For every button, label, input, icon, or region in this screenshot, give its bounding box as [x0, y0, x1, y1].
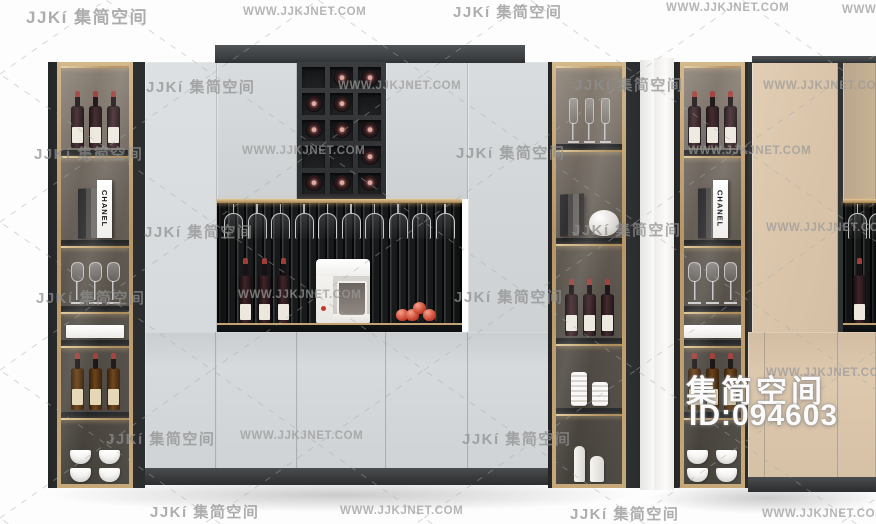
- wine-slot-filled: [358, 120, 381, 141]
- right-cabinet-side-panel: [654, 58, 674, 490]
- flute-item: [568, 98, 579, 142]
- hang-glass-item: [317, 204, 338, 240]
- wine-slot-filled: [358, 146, 381, 167]
- product-image: CHANEL: [0, 0, 876, 524]
- open-shelf: [217, 199, 462, 332]
- bottle-item: [565, 294, 578, 336]
- column-gold-frame: CHANEL: [57, 62, 133, 488]
- cylinder-item: [571, 372, 587, 406]
- bottle-item: [89, 106, 102, 148]
- tall-door-right: [468, 62, 550, 332]
- bottle-item: [724, 106, 737, 148]
- wine-slot-filled: [302, 93, 325, 114]
- bottle-item: [89, 368, 102, 410]
- wine-rack-grid: [297, 62, 386, 199]
- hang-glass-item: [435, 204, 456, 240]
- chanel-book: CHANEL: [97, 180, 112, 238]
- bottle-item: [853, 275, 866, 325]
- upper-door-right: [386, 62, 468, 199]
- wine-slot-filled: [330, 67, 353, 88]
- shelf-flutes: [556, 66, 622, 150]
- hang-glass-item: [868, 204, 876, 240]
- gold-trim-top: [217, 199, 462, 203]
- glass-item: [71, 262, 84, 304]
- bottle-item: [239, 275, 252, 325]
- wine-slot-empty: [330, 146, 353, 167]
- shelf-wine-glasses: [61, 246, 129, 312]
- bottle-item: [277, 275, 290, 325]
- hang-glass-item: [364, 204, 385, 240]
- glass-item: [706, 262, 719, 304]
- hanging-glass-rack: [847, 204, 872, 240]
- open-shelf-items: [217, 259, 462, 325]
- gold-trim-top: [843, 199, 876, 203]
- wine-slot-filled: [330, 173, 353, 194]
- hang-glass-item: [411, 204, 432, 240]
- fruit-bowl: [392, 302, 440, 325]
- hang-glass-item: [388, 204, 409, 240]
- upper-door-shadowed: [843, 62, 876, 199]
- left-cabinet-right-column: [548, 62, 640, 488]
- watermark-url: WWW.JJKJNET.COM: [243, 6, 366, 18]
- hang-glass-item: [270, 204, 291, 240]
- hang-glass-item: [247, 204, 268, 240]
- door-divider: [215, 332, 217, 468]
- watermark-url: WWW.JJKJNET.COM: [842, 4, 876, 16]
- wine-slot-empty: [302, 146, 325, 167]
- bottle-item: [71, 368, 84, 410]
- column-gold-frame: [552, 62, 626, 488]
- white-bottle-item: [574, 446, 585, 482]
- glass-item: [107, 262, 120, 304]
- wine-slot-empty: [302, 67, 325, 88]
- book-stack: [560, 193, 584, 236]
- shelf-books: CHANEL: [684, 156, 741, 246]
- watermark-logo: JJKí 集简空间: [453, 1, 562, 22]
- cup-stack-item: [69, 449, 93, 482]
- bottle-item: [583, 294, 596, 336]
- left-cabinet-left-column: CHANEL: [48, 62, 145, 488]
- column-glass-interior: CHANEL: [61, 66, 129, 484]
- white-box-item: [684, 325, 741, 338]
- right-cabinet-top-edge: [752, 56, 876, 63]
- cup-stack-item: [98, 449, 122, 482]
- upper-door-left: [217, 62, 297, 199]
- shelf-books: CHANEL: [61, 156, 129, 246]
- shelf-bottle-group: [239, 259, 290, 325]
- hang-glass-item: [341, 204, 362, 240]
- tall-beige-door: [752, 62, 838, 332]
- shelf-cylinders: [556, 344, 622, 414]
- sphere-vase: [589, 210, 619, 236]
- wine-slot-filled: [358, 173, 381, 194]
- flute-item: [600, 98, 611, 142]
- open-shelf-items: [843, 259, 876, 325]
- gold-trim-bottom: [843, 323, 876, 332]
- bottle-item: [601, 294, 614, 336]
- right-cabinet-base: [748, 477, 876, 492]
- bottle-item: [688, 106, 701, 148]
- wine-slot-filled: [302, 173, 325, 194]
- shelf-white-box: [684, 312, 741, 346]
- shelf-wine-bottles: [556, 244, 622, 344]
- cup-stack-item: [686, 449, 710, 482]
- shelf-wine-bottles: [684, 66, 741, 156]
- tall-door-left: [145, 62, 217, 332]
- bottle-item: [258, 275, 271, 325]
- left-cabinet-side-panel: [640, 60, 654, 490]
- bottle-item: [107, 368, 120, 410]
- left-cabinet-top-band: [215, 45, 525, 63]
- wine-slot-filled: [330, 120, 353, 141]
- shelf-cups: [61, 418, 129, 484]
- hang-glass-item: [223, 204, 244, 240]
- shelf-books-vase: [556, 150, 622, 244]
- wine-slot-filled: [302, 120, 325, 141]
- hanging-glass-rack: [221, 204, 458, 240]
- shelf-amber-bottles: [61, 346, 129, 418]
- hang-glass-item: [294, 204, 315, 240]
- hang-glass-item: [847, 204, 868, 240]
- wine-slot-empty: [358, 93, 381, 114]
- glass-item: [688, 262, 701, 304]
- bottle-item: [107, 106, 120, 148]
- door-divider: [296, 332, 298, 468]
- chanel-book: CHANEL: [713, 180, 728, 238]
- wine-slot-filled: [330, 93, 353, 114]
- flute-item: [584, 98, 595, 142]
- shelf-wine-bottles: [61, 66, 129, 156]
- glass-item: [89, 262, 102, 304]
- wine-slot-filled: [358, 67, 381, 88]
- overlay-id-text: ID:094603: [689, 399, 838, 433]
- apple-item: [423, 309, 436, 321]
- cylinder-item: [592, 382, 608, 406]
- white-bottle-item: [590, 456, 604, 482]
- white-box-item: [66, 325, 124, 338]
- coffee-maker: [316, 259, 370, 325]
- shelf-white-bottles: [556, 414, 622, 484]
- door-divider: [385, 332, 387, 468]
- column-glass-interior: [556, 66, 622, 484]
- bottle-item: [71, 106, 84, 148]
- bottle-item: [706, 106, 719, 148]
- left-cabinet-base: [145, 468, 550, 485]
- gold-trim-bottom: [217, 323, 462, 332]
- lower-doors: [145, 332, 550, 468]
- glass-item: [724, 262, 737, 304]
- shelf-wine-glasses: [684, 246, 741, 312]
- watermark-logo: JJKí 集简空间: [26, 3, 148, 28]
- right-open-shelf-cropped: [843, 199, 876, 332]
- shelf-white-box: [61, 312, 129, 346]
- cup-stack-item: [715, 449, 739, 482]
- door-divider: [467, 332, 469, 468]
- watermark-url: WWW.JJKJNET.COM: [666, 2, 789, 14]
